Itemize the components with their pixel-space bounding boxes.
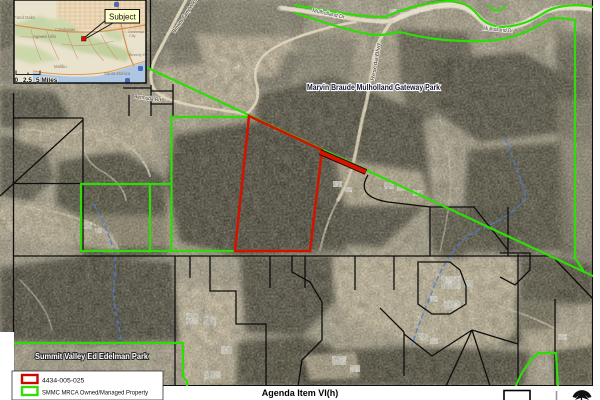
svg-text:Agenda Item VI(h): Agenda Item VI(h) bbox=[262, 388, 339, 398]
svg-text:Agoura Hills: Agoura Hills bbox=[33, 34, 56, 39]
svg-text:Malibu: Malibu bbox=[54, 64, 67, 69]
svg-text:Summit Valley Ed Edelman Park: Summit Valley Ed Edelman Park bbox=[35, 352, 149, 361]
svg-text:*and Oaks: *and Oaks bbox=[15, 15, 35, 20]
svg-text:SMMC MRCA Owned/Managed Proper: SMMC MRCA Owned/Managed Property bbox=[42, 390, 149, 397]
svg-text:Santa Monica: Santa Monica bbox=[104, 71, 131, 76]
svg-text:Beverly H: Beverly H bbox=[129, 53, 146, 57]
svg-text:Marvin Braude Mulholland Gatew: Marvin Braude Mulholland Gateway Park bbox=[307, 83, 441, 92]
svg-text:4434-005-025: 4434-005-025 bbox=[42, 378, 85, 385]
svg-text:Subject: Subject bbox=[109, 13, 136, 22]
svg-text:City: City bbox=[129, 34, 136, 38]
svg-text:Calabasas: Calabasas bbox=[55, 27, 75, 32]
